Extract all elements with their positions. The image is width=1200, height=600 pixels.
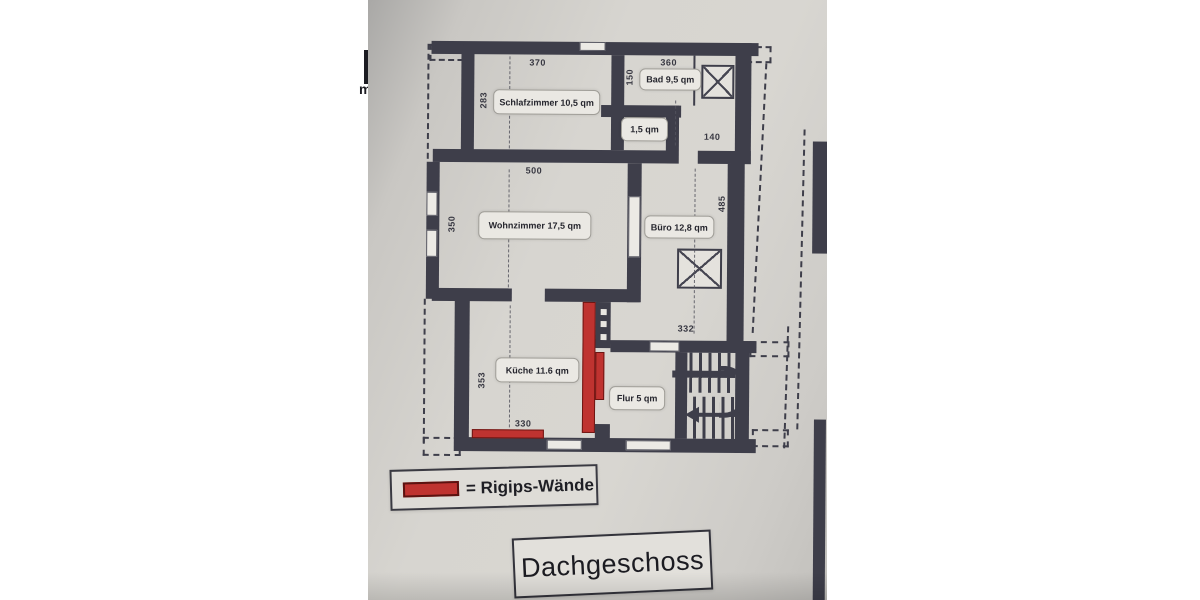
dim-140: 140 (704, 132, 721, 142)
room-label-wc: 1,5 qm (621, 117, 668, 141)
roof-dashed-left-upper (427, 44, 430, 159)
wall-detail-dot (601, 334, 607, 340)
rigips-wall-flur-left (595, 352, 604, 400)
wall-flur-top (610, 340, 756, 353)
dim-332: 332 (678, 324, 695, 334)
shaft-cross-icon (701, 65, 734, 99)
page: m (0, 0, 1200, 600)
floor-plan: Schlafzimmer 10,5 qm Bad 9,5 qm 1,5 qm W… (368, 0, 827, 600)
roof-dashed-box-top-right (736, 46, 771, 63)
door-wohnzimmer-buero (628, 196, 640, 257)
rigips-color-swatch (403, 481, 459, 498)
dim-150: 150 (625, 69, 635, 86)
wall-wohnzimmer-bottom-left (432, 288, 512, 302)
roof-dashed-left-lower (423, 299, 426, 444)
wall-right-middle (726, 164, 744, 343)
rigips-wall-kueche-flur (582, 302, 596, 433)
dim-353: 353 (476, 372, 486, 389)
staircase-direction-arrow-icon (685, 407, 699, 423)
adjacent-plan-dashed-line (796, 129, 805, 429)
window-bottom-left (547, 440, 582, 450)
wall-kueche-left (454, 299, 470, 439)
door-flur (649, 341, 679, 351)
adjacent-plan-wall-lower (813, 420, 826, 600)
roof-dashed-box-top-left (429, 44, 463, 61)
dim-485: 485 (717, 196, 727, 213)
window-left-upper (426, 192, 437, 216)
wall-flur-stairs-divider (675, 353, 688, 439)
scanned-photo: Schlafzimmer 10,5 qm Bad 9,5 qm 1,5 qm W… (368, 0, 827, 600)
room-label-bad: Bad 9,5 qm (639, 68, 701, 90)
adjacent-plan-wall-upper (812, 142, 827, 254)
roof-dashed-right (752, 63, 768, 333)
room-label-wohnzimmer: Wohnzimmer 17,5 qm (478, 211, 591, 240)
room-label-flur: Flur 5 qm (609, 386, 665, 410)
wall-flur-bottom-left (595, 424, 610, 440)
rigips-wall-kueche-bottom (472, 429, 544, 439)
window-bottom-right (626, 440, 671, 450)
wall-schlafzimmer-bottom (433, 149, 669, 164)
roof-dashed-box-stairs-top (749, 341, 789, 357)
legend-label: = Rigips-Wände (466, 475, 594, 499)
dim-500: 500 (526, 165, 543, 175)
room-label-buero: Büro 12,8 qm (644, 215, 714, 238)
dim-283: 283 (478, 92, 488, 109)
window-top (580, 42, 606, 51)
staircase-direction-line (697, 413, 747, 417)
dim-350: 350 (447, 216, 457, 233)
wall-buero-top (698, 151, 751, 164)
title-box: Dachgeschoss (512, 530, 714, 599)
floor-title: Dachgeschoss (520, 544, 704, 583)
wall-detail-dot (601, 309, 607, 315)
wall-wohnzimmer-bottom-right (545, 289, 640, 303)
room-label-kueche: Küche 11.6 qm (495, 357, 579, 383)
wall-schlafzimmer-left (461, 47, 475, 161)
dim-330: 330 (515, 418, 532, 428)
legend-box: = Rigips-Wände (389, 464, 598, 511)
chimney-cross-icon (677, 249, 722, 289)
wall-detail-dot (601, 321, 607, 327)
window-left-lower (426, 230, 437, 257)
dim-360: 360 (660, 57, 677, 67)
dim-370: 370 (529, 58, 546, 68)
room-label-schlafzimmer: Schlafzimmer 10,5 qm (493, 89, 600, 115)
roof-dashed-box-bottom-left (423, 437, 461, 456)
